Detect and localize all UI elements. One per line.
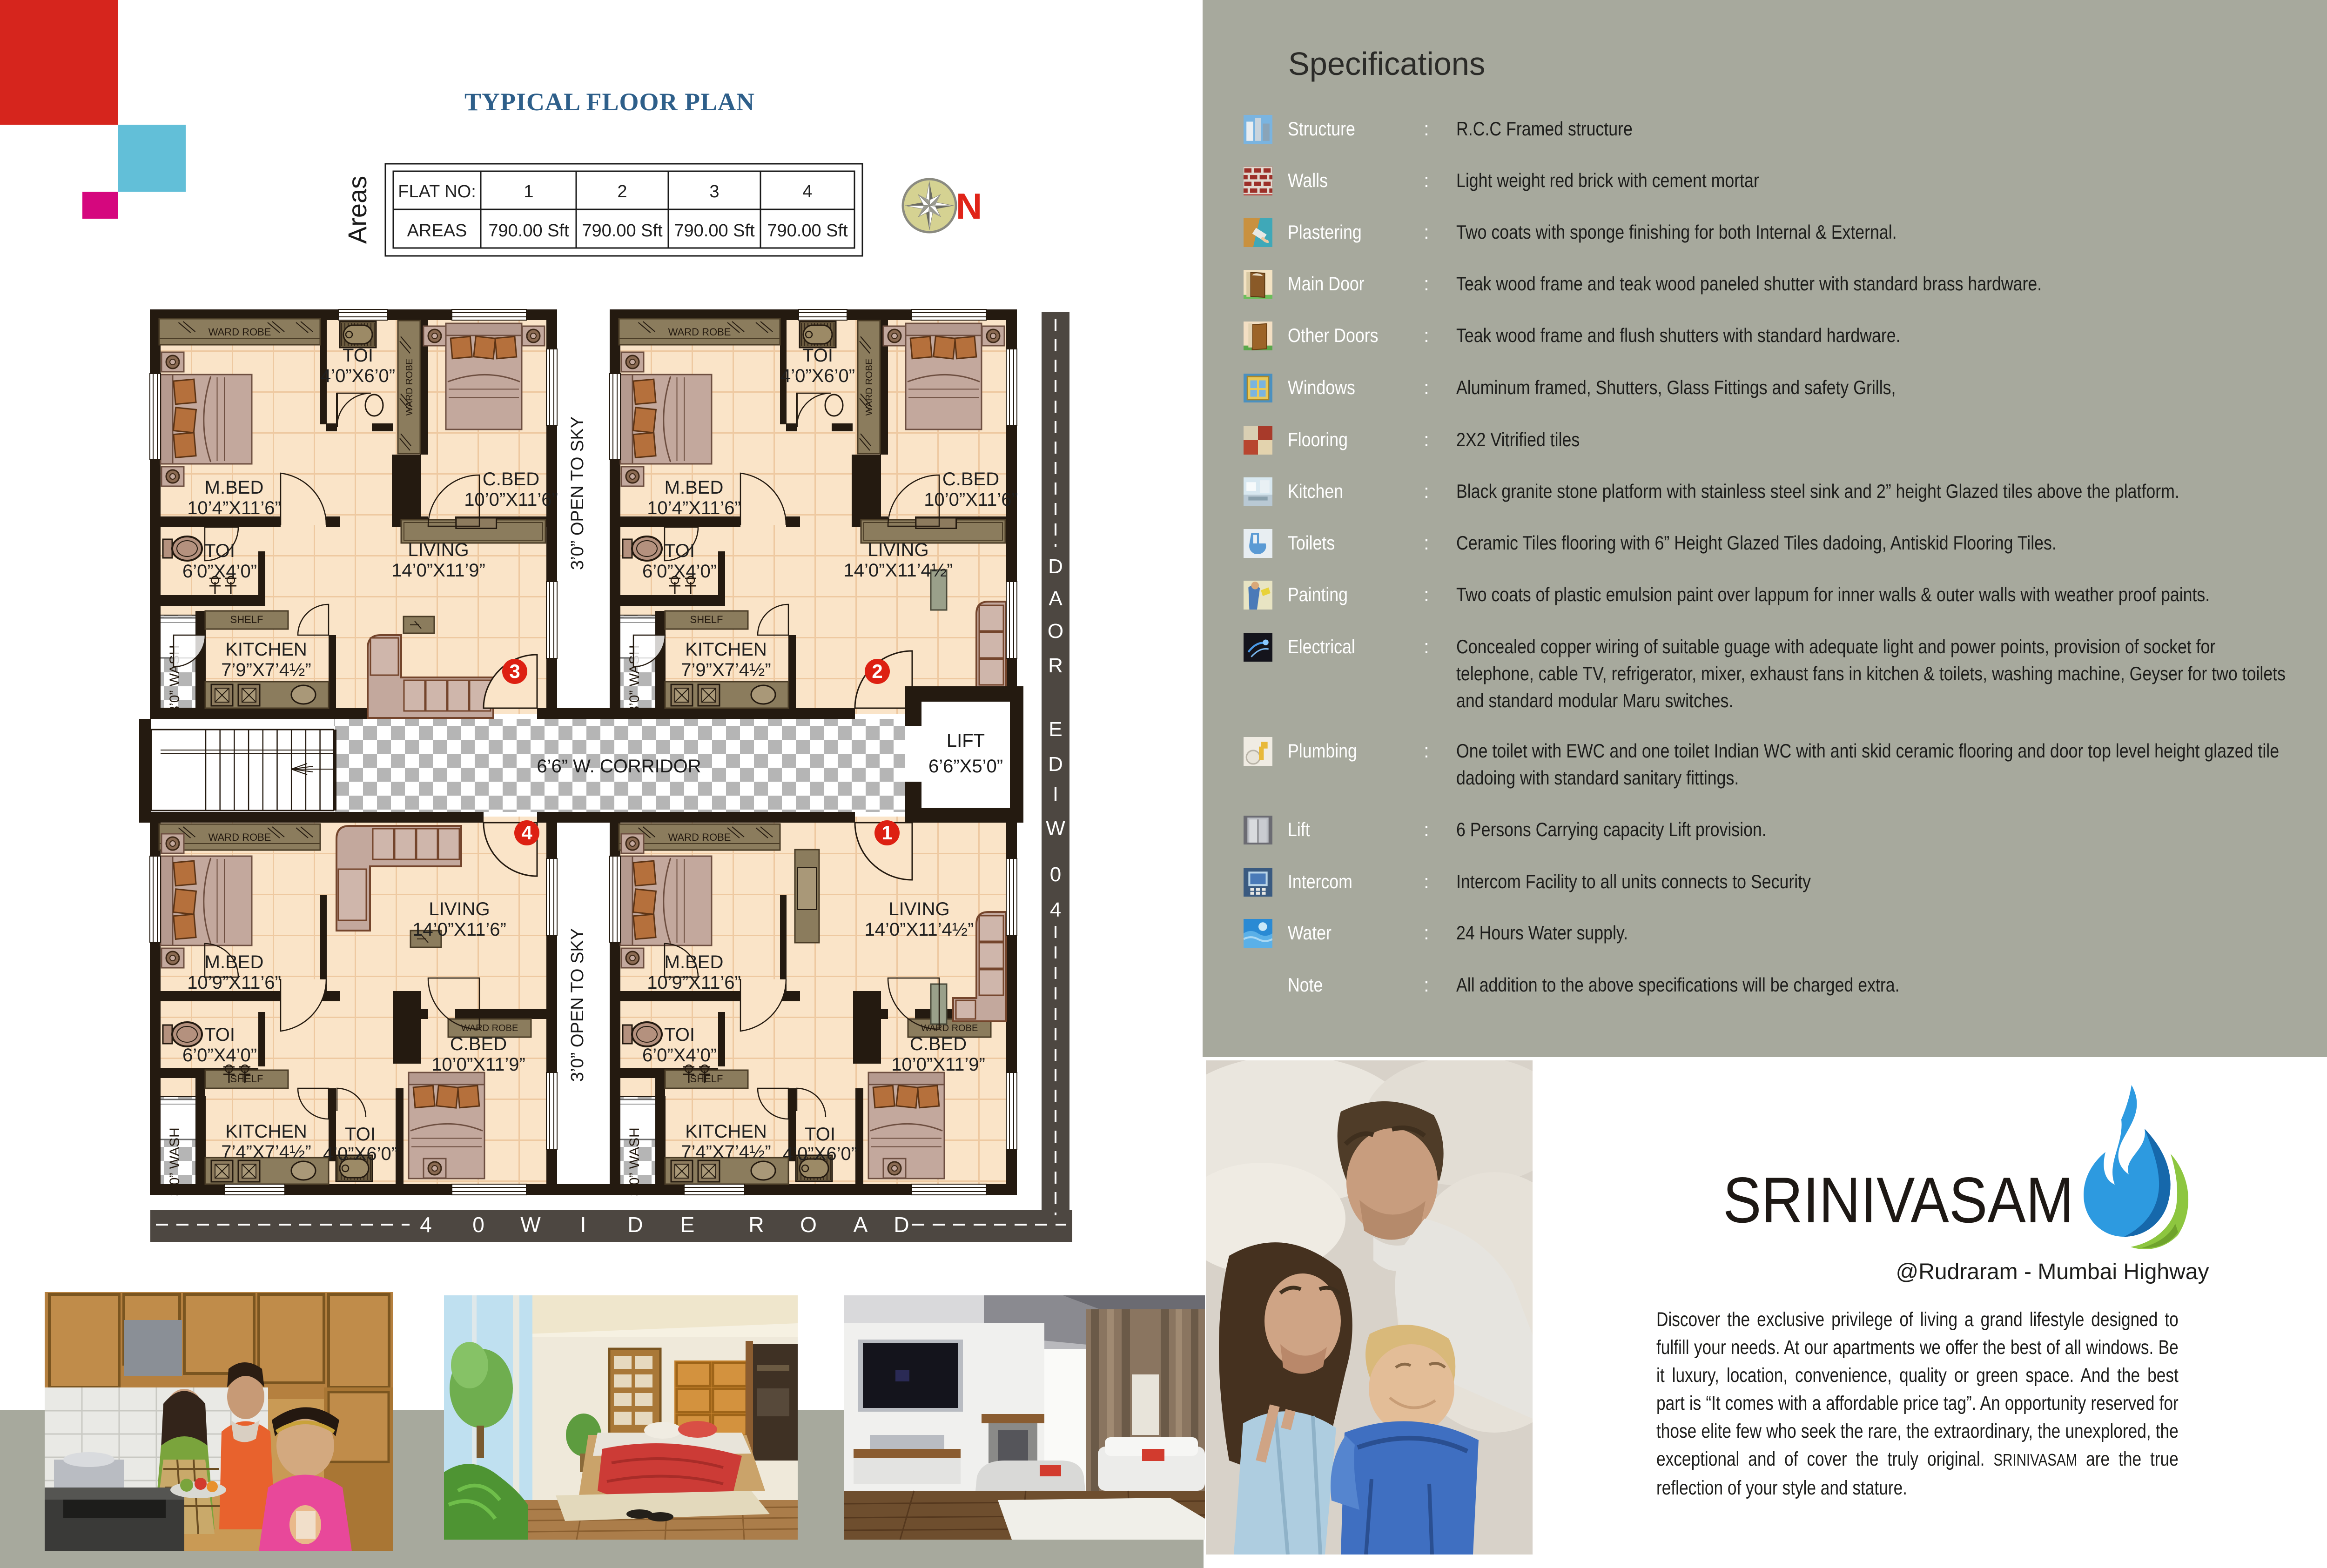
svg-text:3’0” OPEN TO SKY: 3’0” OPEN TO SKY [568, 416, 587, 570]
svg-text:TOI: TOI [204, 1025, 235, 1045]
svg-text:3’0” OPEN TO SKY: 3’0” OPEN TO SKY [568, 928, 587, 1082]
svg-text:790.00 Sft: 790.00 Sft [767, 221, 848, 241]
svg-text:WARD ROBE: WARD ROBE [668, 326, 731, 338]
svg-text:10’4”X11’6”: 10’4”X11’6” [647, 498, 741, 518]
svg-text:6’6” W. CORRIDOR: 6’6” W. CORRIDOR [537, 756, 701, 777]
svg-text:LIVING: LIVING [868, 540, 928, 560]
svg-text:KITCHEN: KITCHEN [685, 1121, 767, 1142]
svg-text:N: N [956, 186, 982, 227]
svg-text:6’0”X4’0”: 6’0”X4’0” [642, 561, 717, 582]
svg-text:WARD ROBE: WARD ROBE [208, 831, 271, 843]
svg-text:M.BED: M.BED [205, 477, 264, 498]
svg-text:D: D [1048, 555, 1063, 578]
svg-text:FLAT NO:: FLAT NO: [398, 182, 476, 201]
svg-text:E: E [1049, 718, 1062, 741]
svg-text:14’0”X11’6”: 14’0”X11’6” [412, 919, 506, 940]
svg-text:14’0”X11’4½”: 14’0”X11’4½” [844, 560, 953, 581]
svg-text:10’9”X11’6”: 10’9”X11’6” [187, 972, 281, 993]
svg-text:14’0”X11’4½”: 14’0”X11’4½” [865, 919, 974, 940]
svg-text:4: 4 [420, 1213, 432, 1237]
svg-text:D: D [627, 1213, 643, 1237]
svg-text:AREAS: AREAS [407, 221, 467, 241]
svg-text:4: 4 [1050, 898, 1061, 921]
svg-text:14’0”X11’9”: 14’0”X11’9” [391, 560, 485, 581]
svg-text:0: 0 [472, 1213, 484, 1237]
svg-text:C.BED: C.BED [483, 469, 539, 489]
svg-text:WARD ROBE: WARD ROBE [208, 326, 271, 338]
svg-text:790.00 Sft: 790.00 Sft [488, 221, 569, 241]
svg-text:C.BED: C.BED [450, 1034, 507, 1054]
svg-text:10’4”X11’6”: 10’4”X11’6” [187, 498, 281, 518]
svg-text:I: I [1053, 783, 1058, 806]
svg-text:SHELF: SHELF [690, 614, 723, 625]
svg-text:KITCHEN: KITCHEN [685, 639, 767, 660]
svg-text:WARD ROBE: WARD ROBE [864, 359, 874, 416]
svg-text:1: 1 [524, 182, 533, 201]
svg-text:6’0”X4’0”: 6’0”X4’0” [182, 1045, 257, 1065]
svg-text:LIFT: LIFT [947, 730, 985, 751]
svg-text:C.BED: C.BED [942, 469, 999, 489]
svg-text:TOI: TOI [204, 541, 235, 561]
svg-text:SHELF: SHELF [230, 614, 263, 625]
svg-text:4: 4 [521, 822, 532, 844]
svg-text:M.BED: M.BED [205, 952, 264, 972]
svg-text:KITCHEN: KITCHEN [225, 1121, 307, 1142]
svg-text:10’0”X11’9”: 10’0”X11’9” [431, 1054, 525, 1075]
svg-text:A: A [1049, 587, 1063, 610]
svg-text:WARD ROBE: WARD ROBE [404, 359, 415, 416]
svg-text:6’0”X4’0”: 6’0”X4’0” [182, 561, 257, 582]
svg-text:1: 1 [881, 822, 892, 844]
svg-text:4’0”X6’0”: 4’0”X6’0” [780, 366, 855, 386]
svg-text:M.BED: M.BED [665, 477, 724, 498]
svg-text:W: W [520, 1213, 541, 1237]
svg-text:TOI: TOI [664, 1025, 695, 1045]
svg-text:R: R [1048, 654, 1063, 677]
svg-text:LIVING: LIVING [429, 899, 490, 919]
svg-text:TOI: TOI [805, 1124, 835, 1145]
svg-text:4’0”X6’0”: 4’0”X6’0” [783, 1144, 857, 1164]
svg-text:Areas: Areas [343, 176, 372, 244]
svg-text:7’4”X7’4½”: 7’4”X7’4½” [221, 1142, 311, 1162]
svg-text:6’6”X5’0”: 6’6”X5’0” [928, 756, 1003, 777]
svg-text:I: I [580, 1213, 586, 1237]
svg-text:D: D [1048, 753, 1063, 776]
svg-text:SRINIVASAM: SRINIVASAM [1723, 1166, 2074, 1231]
svg-text:2: 2 [617, 182, 627, 201]
svg-text:4’0”X6’0”: 4’0”X6’0” [323, 1144, 397, 1164]
svg-text:W: W [1046, 817, 1065, 840]
svg-text:3: 3 [709, 182, 719, 201]
svg-text:0: 0 [1050, 863, 1061, 886]
svg-text:C.BED: C.BED [910, 1034, 967, 1054]
svg-text:R: R [748, 1213, 764, 1237]
svg-text:4: 4 [802, 182, 812, 201]
svg-text:790.00 Sft: 790.00 Sft [582, 221, 663, 241]
svg-text:6’0”X4’0”: 6’0”X4’0” [642, 1045, 717, 1065]
svg-text:TOI: TOI [802, 345, 833, 366]
svg-text:WARD ROBE: WARD ROBE [668, 831, 731, 843]
svg-text:TOI: TOI [345, 1124, 376, 1145]
svg-text:TOI: TOI [664, 541, 695, 561]
svg-text:10’0”X11’6”: 10’0”X11’6” [464, 489, 558, 510]
svg-text:LIVING: LIVING [888, 899, 949, 919]
svg-text:M.BED: M.BED [665, 952, 724, 972]
svg-text:TYPICAL FLOOR PLAN: TYPICAL FLOOR PLAN [464, 88, 755, 116]
svg-text:TOI: TOI [343, 345, 373, 366]
svg-text:10’9”X11’6”: 10’9”X11’6” [647, 972, 741, 993]
svg-text:O: O [1048, 620, 1063, 643]
svg-text:10’0”X11’6”: 10’0”X11’6” [924, 489, 1018, 510]
svg-text:790.00 Sft: 790.00 Sft [674, 221, 755, 241]
svg-text:7’9”X7’4½”: 7’9”X7’4½” [681, 660, 771, 680]
svg-text:3: 3 [509, 660, 520, 682]
svg-text:2: 2 [872, 660, 882, 682]
svg-text:4’0”X6’0”: 4’0”X6’0” [321, 366, 395, 386]
svg-text:KITCHEN: KITCHEN [225, 639, 307, 660]
svg-text:E: E [680, 1213, 695, 1237]
svg-text:7’4”X7’4½”: 7’4”X7’4½” [681, 1142, 771, 1162]
svg-text:7’9”X7’4½”: 7’9”X7’4½” [221, 660, 311, 680]
svg-text:10’0”X11’9”: 10’0”X11’9” [891, 1054, 985, 1075]
svg-text:O: O [800, 1213, 817, 1237]
svg-text:LIVING: LIVING [408, 540, 469, 560]
svg-text:D: D [894, 1213, 909, 1237]
svg-text:A: A [854, 1213, 868, 1237]
